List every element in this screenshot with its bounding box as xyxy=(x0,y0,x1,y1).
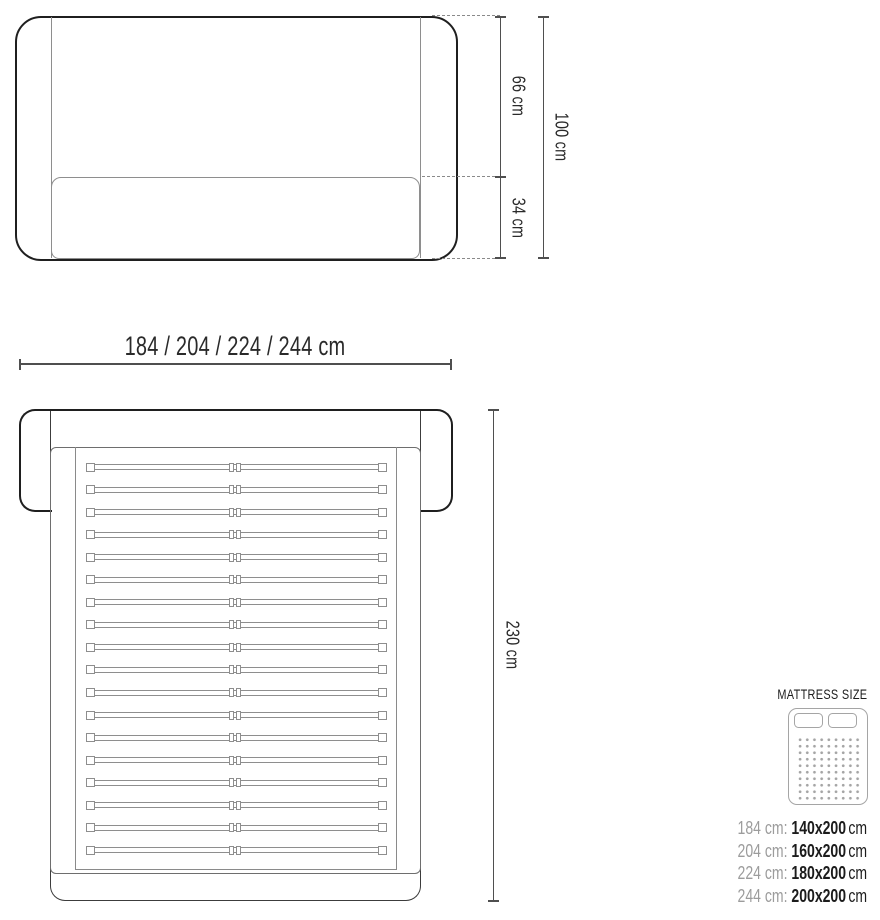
bed-slat xyxy=(86,665,387,674)
frame-size-label: 224 cm: xyxy=(737,863,787,883)
extension-dash-top xyxy=(432,15,500,16)
lower-height-label: 34 cm xyxy=(508,198,529,238)
mattress-size-unit: cm xyxy=(848,818,867,838)
slat-rows xyxy=(75,447,397,870)
total-height-label: 100 cm xyxy=(551,113,572,162)
mattress-size-unit: cm xyxy=(848,863,867,883)
length-dimension-line xyxy=(488,409,499,902)
table-row: 204 cm:160x200cm xyxy=(737,840,867,863)
bed-slat xyxy=(86,823,387,832)
bed-slat xyxy=(86,711,387,720)
mattress-size-value: 200x200 xyxy=(791,886,846,906)
bed-slat xyxy=(86,598,387,607)
front-view-right-panel-line xyxy=(420,17,421,258)
front-view-base-section xyxy=(51,177,420,259)
frame-size-label: 184 cm: xyxy=(737,818,787,838)
legend-title: MATTRESS SIZE xyxy=(777,686,867,702)
mattress-size-table: 184 cm:140x200cm 204 cm:160x200cm 224 cm… xyxy=(701,817,867,907)
pillow-icon xyxy=(828,713,857,728)
bed-slat xyxy=(86,530,387,539)
width-options-label: 184 / 204 / 224 / 244 cm xyxy=(125,331,346,362)
mattress-size-value: 140x200 xyxy=(791,818,846,838)
frame-size-label: 204 cm: xyxy=(737,841,787,861)
height-split-dimension-line xyxy=(495,16,506,259)
headboard-right-ear xyxy=(420,409,453,512)
mattress-size-unit: cm xyxy=(848,886,867,906)
table-row: 224 cm:180x200cm xyxy=(737,862,867,885)
pillow-icon xyxy=(794,713,823,728)
mattress-icon xyxy=(788,708,868,805)
upper-height-label: 66 cm xyxy=(508,76,529,116)
bed-slat xyxy=(86,485,387,494)
bed-slat xyxy=(86,733,387,742)
table-row: 244 cm:200x200cm xyxy=(737,885,867,908)
total-height-dimension-line xyxy=(538,16,549,259)
bed-slat xyxy=(86,508,387,517)
extension-dash-middle xyxy=(422,176,500,177)
mattress-size-unit: cm xyxy=(848,841,867,861)
bed-slat xyxy=(86,463,387,472)
width-dimension-line xyxy=(19,359,452,370)
mattress-size-value: 180x200 xyxy=(791,863,846,883)
bed-slat xyxy=(86,756,387,765)
table-row: 184 cm:140x200cm xyxy=(737,817,867,840)
length-label: 230 cm xyxy=(502,621,523,670)
extension-dash-bottom xyxy=(432,258,500,259)
frame-size-label: 244 cm: xyxy=(737,886,787,906)
mattress-tufting-dots xyxy=(795,735,861,800)
headboard-top-edge xyxy=(45,409,435,411)
headboard-left-ear xyxy=(19,409,52,512)
bed-slat xyxy=(86,643,387,652)
bed-slat xyxy=(86,846,387,855)
bed-slat xyxy=(86,575,387,584)
bed-slat xyxy=(86,688,387,697)
bed-dimension-diagram: 66 cm 34 cm 100 cm 184 / 204 / 224 / 244… xyxy=(0,0,880,920)
bed-slat xyxy=(86,778,387,787)
mattress-size-value: 160x200 xyxy=(791,841,846,861)
bed-slat xyxy=(86,553,387,562)
bed-slat xyxy=(86,620,387,629)
bed-slat xyxy=(86,801,387,810)
